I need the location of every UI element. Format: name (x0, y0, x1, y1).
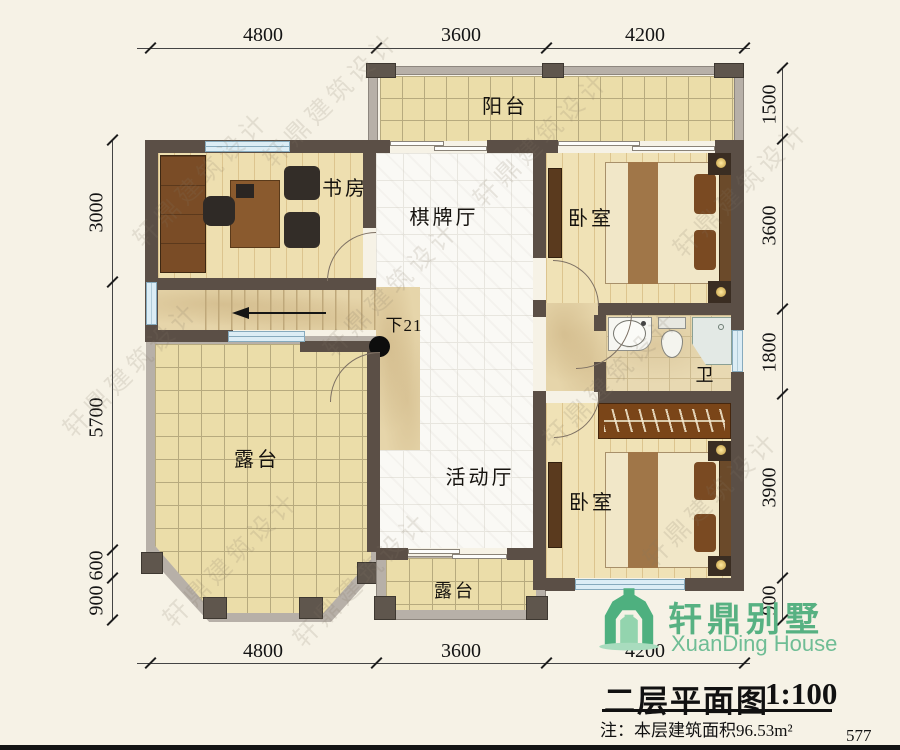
faucet (641, 321, 646, 326)
wall (145, 330, 233, 342)
wall (731, 372, 744, 591)
stairs-direction-label: 下21 (378, 311, 430, 336)
terrace-post (374, 596, 396, 620)
desk-chair (203, 196, 235, 226)
wall (376, 140, 390, 153)
pillow (694, 230, 716, 270)
wall (545, 578, 575, 591)
room-label-bedroom-top: 卧室 (551, 202, 631, 231)
bed-runner (628, 452, 658, 568)
wall (376, 548, 408, 560)
terrace-post (299, 597, 323, 619)
room-label-activity-hall: 活动厅 (420, 461, 540, 490)
title-underline (602, 709, 832, 712)
dim-bottom-1: 4800 (218, 640, 308, 663)
wall (685, 578, 744, 591)
dim-left-1: 3000 (86, 168, 109, 258)
balcony-post (542, 63, 564, 78)
toilet-tank (658, 317, 686, 329)
area-note: 注：本层建筑面积96.53m² (600, 716, 793, 741)
window (205, 141, 290, 152)
open-door-leaf (300, 341, 372, 352)
dimension-line-top (137, 48, 750, 49)
stair-arrow-shaft (248, 312, 326, 314)
terrace-post (141, 552, 163, 574)
dim-top-3: 4200 (600, 24, 690, 47)
dim-top-1: 4800 (218, 24, 308, 47)
floor-plan-page: 阳台 书房 棋牌厅 卧室 卫 露台 活动厅 卧室 露台 下21 4800 360… (0, 0, 900, 750)
window (146, 282, 157, 325)
sliding-door (452, 554, 507, 559)
armchair (284, 212, 320, 248)
window (228, 331, 305, 342)
terrace-post (526, 596, 548, 620)
dim-bottom-2: 3600 (416, 640, 506, 663)
sliding-door (632, 146, 715, 151)
wardrobe-hangers (604, 409, 725, 432)
dim-left-4: 900 (86, 556, 109, 646)
dim-left-2: 5700 (86, 373, 109, 463)
balcony-post (366, 63, 396, 78)
lamp (716, 560, 726, 570)
balcony-post (714, 63, 744, 78)
room-label-terrace-main: 露台 (217, 443, 297, 472)
lamp (716, 445, 726, 455)
dim-right-3: 1800 (759, 308, 782, 398)
balcony-floor (380, 76, 734, 141)
dim-right-1: 1500 (759, 60, 782, 150)
pillow (694, 462, 716, 500)
room-label-bedroom-bottom: 卧室 (552, 486, 632, 515)
page-number: 577 (846, 726, 872, 746)
room-label-chess-hall: 棋牌厅 (384, 201, 504, 230)
page-bottom-rule (0, 745, 900, 750)
lamp (716, 287, 726, 297)
brand-name-en: XuanDing House (671, 631, 837, 657)
xuanding-logo-icon (596, 582, 662, 654)
wall (533, 140, 546, 258)
pillow (694, 514, 716, 552)
room-label-terrace-small: 露台 (415, 577, 495, 603)
dimension-line-right (782, 68, 783, 620)
pillow (694, 174, 716, 214)
sliding-door (434, 146, 487, 151)
wall (533, 300, 546, 317)
wall (533, 391, 546, 590)
wall (598, 391, 744, 403)
stair-arrow-head (232, 307, 249, 319)
dimension-line-bottom (137, 663, 750, 664)
sliding-door (558, 141, 640, 146)
computer (236, 184, 254, 198)
wall (731, 140, 744, 330)
room-label-study: 书房 (305, 172, 385, 201)
shower-drain (718, 324, 724, 330)
lamp (716, 158, 726, 168)
wall (594, 362, 606, 392)
room-label-balcony: 阳台 (465, 90, 545, 119)
plan-title: 二层平面图 (604, 676, 769, 721)
stair-treads (205, 290, 376, 330)
terrace-post (203, 597, 227, 619)
study-cabinet (160, 155, 206, 273)
window (732, 330, 743, 372)
room-label-bathroom: 卫 (690, 361, 722, 387)
bed-runner (628, 162, 658, 284)
dim-top-2: 3600 (416, 24, 506, 47)
wall (487, 140, 558, 153)
dim-right-2: 3600 (759, 181, 782, 271)
plan-scale: 1:100 (765, 676, 837, 712)
dim-right-4: 3900 (759, 443, 782, 533)
